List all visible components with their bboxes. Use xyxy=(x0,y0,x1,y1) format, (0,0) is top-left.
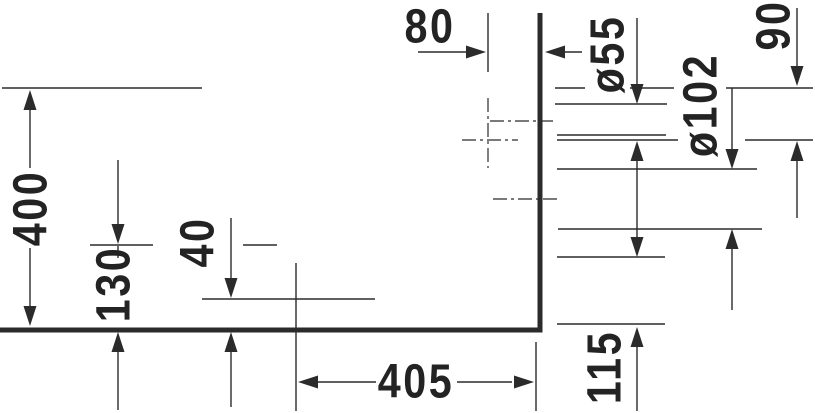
arrowhead-left-icon xyxy=(298,376,318,389)
arrowhead-down-icon xyxy=(112,224,125,244)
dimension-label-130: 130 xyxy=(86,246,140,323)
arrowhead-right-icon xyxy=(514,376,534,389)
profile-outline xyxy=(0,13,540,330)
dimension-label-405: 405 xyxy=(378,354,455,408)
arrowhead-up-icon xyxy=(631,327,644,347)
technical-drawing-canvas: 80 400 130 40 405 ø55 xyxy=(0,0,815,413)
arrowhead-up-icon xyxy=(225,332,238,352)
dimension-diameter-55: ø55 xyxy=(580,15,643,237)
arrowhead-up-icon xyxy=(112,332,125,352)
dimension-80: 80 xyxy=(404,0,582,59)
arrowhead-down-icon xyxy=(631,237,644,257)
arrowhead-right-icon xyxy=(466,46,486,59)
arrowhead-left-icon xyxy=(545,46,565,59)
arrowhead-down-icon xyxy=(24,306,37,326)
dimension-label-diameter-102: ø102 xyxy=(673,53,727,157)
dimension-label-40: 40 xyxy=(170,216,224,267)
dimension-diameter-102: ø102 xyxy=(673,53,738,310)
profile-l-shape xyxy=(0,13,540,330)
dimension-label-400: 400 xyxy=(3,170,57,247)
arrowhead-down-icon xyxy=(225,278,238,298)
dimension-90: 90 xyxy=(746,0,803,218)
dimension-130: 130 xyxy=(86,160,140,410)
centerlines xyxy=(462,98,558,199)
arrowhead-down-icon xyxy=(791,66,804,86)
dimension-drawing: 80 400 130 40 405 ø55 xyxy=(0,0,815,413)
dimension-40: 40 xyxy=(170,216,237,407)
dimension-label-90: 90 xyxy=(746,0,800,51)
dimension-400: 400 xyxy=(3,90,57,326)
dimension-405: 405 xyxy=(298,354,534,408)
arrowhead-up-icon xyxy=(24,90,37,110)
arrowhead-up-icon xyxy=(726,229,739,249)
arrowhead-down-icon xyxy=(726,149,739,169)
dimension-label-80: 80 xyxy=(404,0,455,53)
dimension-label-diameter-55: ø55 xyxy=(580,15,634,94)
arrowhead-up-icon xyxy=(791,141,804,161)
dimension-label-115: 115 xyxy=(577,330,631,404)
arrowhead-up-icon xyxy=(631,141,644,161)
